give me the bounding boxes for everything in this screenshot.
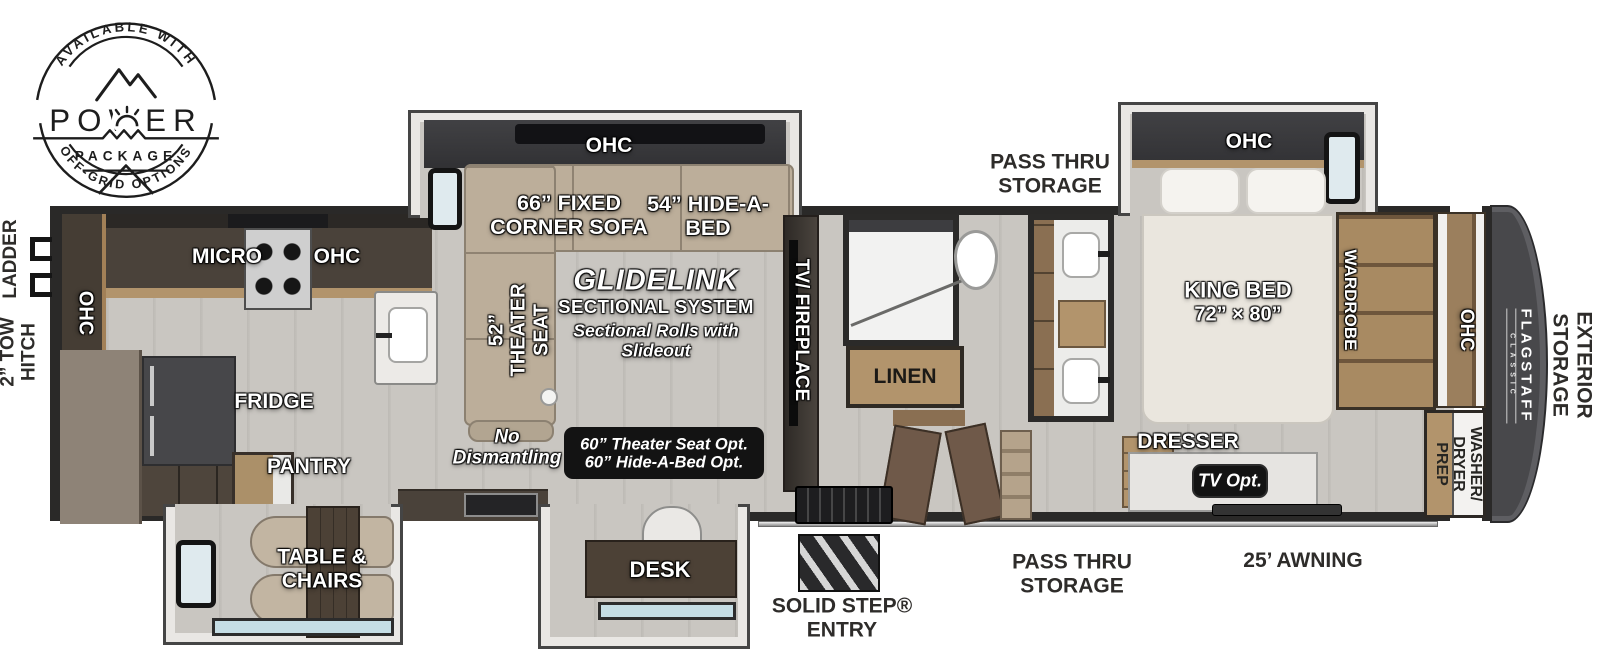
shower-glass bbox=[850, 276, 970, 327]
range-hood bbox=[228, 214, 328, 228]
stove-icon bbox=[244, 228, 312, 310]
no-dismantling-label: No Dismantling bbox=[453, 427, 562, 470]
fridge-icon bbox=[142, 356, 236, 466]
pillow-right bbox=[1246, 168, 1326, 214]
vanity-faucet-1 bbox=[1098, 251, 1110, 257]
brand-label: FLAGSTAFF CLASSIC bbox=[1507, 308, 1534, 423]
theater-seat-label: 52” THEATER SEAT bbox=[485, 284, 552, 377]
pass-thru-storage-top-label: PASS THRU STORAGE bbox=[990, 150, 1110, 197]
living-window-slot bbox=[515, 124, 765, 144]
mountains-icon bbox=[97, 70, 156, 100]
linen-label: LINEN bbox=[874, 365, 937, 389]
washer-dryer-label: WASHER/ DRYER PREP bbox=[1433, 427, 1483, 502]
vanity-faucet-2 bbox=[1098, 377, 1110, 383]
ohc-bedroom-label: OHC bbox=[1226, 130, 1273, 154]
sink-icon bbox=[388, 307, 428, 363]
cup-holder-icon bbox=[540, 388, 558, 406]
table-chairs-label: TABLE & CHAIRS bbox=[277, 545, 366, 592]
rear-wardrobe-cabinet bbox=[60, 350, 142, 524]
bedroom-side-window bbox=[1324, 132, 1360, 204]
sectional-note-label: Sectional Rolls with Slideout bbox=[573, 321, 738, 360]
ohc-living-label: OHC bbox=[586, 134, 633, 158]
fridge-label: FRIDGE bbox=[234, 390, 313, 414]
vanity-sink-1 bbox=[1062, 232, 1100, 278]
living-side-window bbox=[428, 168, 462, 230]
kitchen-island-sink bbox=[374, 291, 438, 385]
dinette-side-window bbox=[176, 540, 216, 608]
outdoor-griddle-icon bbox=[795, 486, 893, 524]
tow-hitch-label: 2” TOW HITCH bbox=[0, 317, 40, 386]
badge-package-text: PACKAGE bbox=[75, 149, 177, 164]
linen-base-cabinet bbox=[893, 410, 965, 426]
vanity-sink-2 bbox=[1062, 358, 1100, 404]
shower bbox=[843, 214, 959, 346]
options-callout-text: 60” Theater Seat Opt. 60” Hide-A-Bed Opt… bbox=[580, 436, 748, 473]
dinette-end-window bbox=[212, 618, 394, 636]
pantry-label: PANTRY bbox=[267, 455, 351, 479]
desk-label: DESK bbox=[629, 557, 690, 583]
awning-label: 25’ AWNING bbox=[1243, 549, 1362, 573]
wardrobe-label: WARDROBE bbox=[1340, 249, 1360, 350]
hide-a-bed-label: 54” HIDE-A- BED bbox=[647, 192, 769, 240]
tv-fireplace-label: TV/ FIREPLACE bbox=[790, 259, 812, 402]
corner-sofa-label: 66” FIXED CORNER SOFA bbox=[490, 191, 648, 239]
solid-step-icon bbox=[798, 534, 880, 592]
interior-steps bbox=[1000, 430, 1032, 520]
power-package-badge: AVAILABLE WITH POWER PACKAGE OFF-GRID OP… bbox=[20, 6, 232, 204]
faucet-icon bbox=[376, 333, 392, 338]
vanity-center-cabinet bbox=[1058, 300, 1106, 348]
tv-opt-label: TV Opt. bbox=[1198, 471, 1262, 492]
ohc-kitchen-left-label: OHC bbox=[74, 291, 97, 335]
sectional-system-label: SECTIONAL SYSTEM bbox=[558, 296, 754, 318]
desk-window bbox=[598, 602, 736, 620]
exterior-storage-label: EXTERIOR STORAGE bbox=[1548, 311, 1595, 418]
king-bed-label: KING BED 72” × 80” bbox=[1184, 278, 1292, 325]
ladder-label: LADDER bbox=[0, 219, 22, 298]
bottom-counter-sink bbox=[464, 493, 538, 517]
shower-head-strip bbox=[849, 220, 953, 232]
ladder-icon bbox=[30, 237, 58, 301]
micro-label: MICRO bbox=[192, 245, 262, 269]
dresser-tv-icon bbox=[1212, 504, 1342, 516]
dresser-label: DRESSER bbox=[1137, 430, 1239, 454]
ohc-kitchen-top-label: OHC bbox=[314, 245, 361, 269]
vanity-tall-cabinet bbox=[1034, 220, 1054, 416]
glidelink-logo: GLIDELINK bbox=[573, 265, 738, 298]
ohc-front-label: OHC bbox=[1455, 309, 1477, 351]
solid-step-entry-label: SOLID STEP® ENTRY bbox=[772, 594, 912, 641]
pillow-left bbox=[1160, 168, 1240, 214]
floorplan-canvas: AVAILABLE WITH POWER PACKAGE OFF-GRID OP… bbox=[0, 0, 1600, 651]
pass-thru-storage-bottom-label: PASS THRU STORAGE bbox=[1012, 550, 1132, 597]
